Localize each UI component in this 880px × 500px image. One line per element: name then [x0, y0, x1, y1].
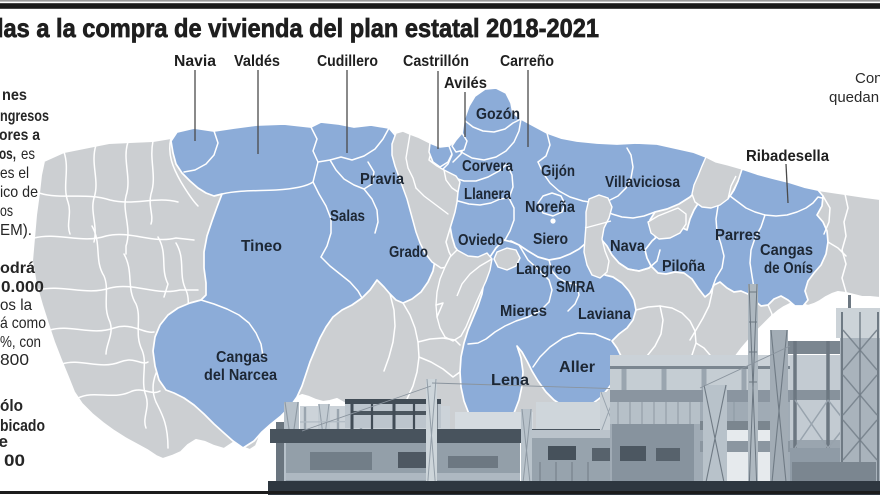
svg-text:es el: es el: [0, 165, 29, 182]
svg-text:Laviana: Laviana: [578, 306, 631, 323]
svg-text:Aller: Aller: [559, 359, 595, 376]
svg-text:e: e: [0, 432, 8, 451]
svg-text:nes: nes: [2, 87, 27, 104]
svg-text:Grado: Grado: [389, 244, 428, 261]
svg-text:Mieres: Mieres: [500, 303, 547, 320]
svg-text:Corvera: Corvera: [462, 158, 513, 175]
svg-text:ngresos: ngresos: [0, 108, 49, 125]
svg-text:quedan: quedan: [829, 89, 879, 106]
svg-text:á como: á como: [0, 315, 46, 332]
svg-text:de Onís: de Onís: [764, 260, 813, 277]
svg-text:Nava: Nava: [610, 238, 645, 255]
svg-text:Con: Con: [855, 70, 880, 87]
svg-text:Valdés: Valdés: [234, 53, 280, 70]
svg-text:SMRA: SMRA: [556, 279, 595, 296]
svg-text:es: es: [21, 146, 35, 163]
svg-text:Parres: Parres: [715, 227, 761, 244]
svg-text:Cangas: Cangas: [760, 242, 813, 259]
svg-text:Cudillero: Cudillero: [317, 53, 378, 70]
svg-text:Oviedo: Oviedo: [458, 232, 504, 249]
svg-text:Siero: Siero: [533, 231, 568, 248]
svg-text:ico de: ico de: [0, 184, 38, 201]
svg-text:os,: os,: [0, 146, 16, 163]
svg-text:Lena: Lena: [491, 372, 529, 389]
svg-text:odrá: odrá: [0, 260, 35, 277]
svg-text:Gozón: Gozón: [476, 106, 520, 123]
svg-text:Cangas: Cangas: [216, 349, 268, 366]
svg-text:las a la compra de vivienda de: las a la compra de vivienda del plan est…: [0, 13, 599, 43]
svg-text:%, con: %, con: [0, 334, 41, 351]
svg-text:Castrillón: Castrillón: [403, 53, 469, 70]
svg-text:Avilés: Avilés: [444, 75, 487, 92]
svg-text:Carreño: Carreño: [500, 53, 554, 70]
svg-text:Piloña: Piloña: [662, 258, 705, 275]
svg-text:0.000: 0.000: [1, 279, 44, 296]
svg-text:EM).: EM).: [0, 222, 32, 239]
svg-text:Noreña: Noreña: [525, 199, 575, 216]
svg-text:ores a: ores a: [0, 127, 40, 144]
svg-text:del Narcea: del Narcea: [204, 367, 277, 384]
svg-text:Navia: Navia: [174, 53, 216, 70]
svg-text:ólo: ólo: [0, 396, 23, 415]
svg-text:os: os: [0, 203, 13, 220]
svg-text:00: 00: [4, 451, 25, 470]
svg-text:Tineo: Tineo: [241, 238, 282, 255]
svg-text:os la: os la: [0, 297, 32, 314]
svg-text:Langreo: Langreo: [516, 261, 571, 278]
svg-text:Salas: Salas: [330, 208, 365, 225]
svg-text:Villaviciosa: Villaviciosa: [605, 174, 680, 191]
svg-text:Ribadesella: Ribadesella: [746, 148, 829, 165]
svg-text:Gijón: Gijón: [541, 163, 575, 180]
svg-text:Pravia: Pravia: [360, 171, 404, 188]
svg-text:Llanera: Llanera: [464, 186, 511, 203]
svg-text:800: 800: [0, 352, 29, 369]
